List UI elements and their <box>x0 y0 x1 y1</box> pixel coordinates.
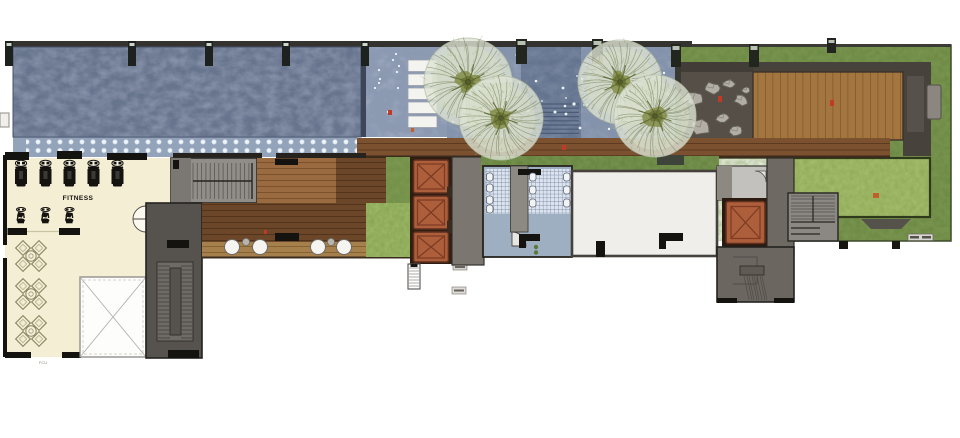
svg-text:FITNESS: FITNESS <box>63 195 94 202</box>
svg-text:FCU: FCU <box>39 360 47 365</box>
